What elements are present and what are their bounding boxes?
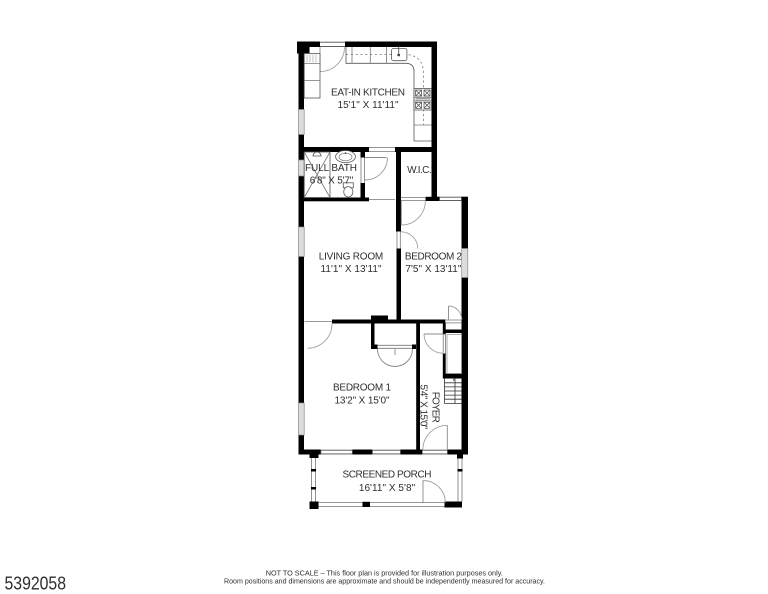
svg-text:W.I.C.: W.I.C. xyxy=(407,165,432,176)
svg-text:Room positions and dimensions: Room positions and dimensions are approx… xyxy=(224,579,545,586)
svg-text:FULL BATH: FULL BATH xyxy=(305,163,357,174)
svg-text:13'2" X 15'0": 13'2" X 15'0" xyxy=(335,396,390,407)
svg-text:5'4" X 15'0": 5'4" X 15'0" xyxy=(417,385,428,430)
svg-text:7'5" X 13'11": 7'5" X 13'11" xyxy=(405,264,461,275)
svg-text:SCREENED PORCH: SCREENED PORCH xyxy=(343,470,432,481)
svg-text:FOYER: FOYER xyxy=(430,392,441,423)
svg-text:EAT-IN KITCHEN: EAT-IN KITCHEN xyxy=(331,88,405,99)
svg-text:6'8" X 5'7": 6'8" X 5'7" xyxy=(310,176,354,187)
svg-text:NOT TO SCALE – This floor plan: NOT TO SCALE – This floor plan is provid… xyxy=(266,570,503,577)
svg-text:LIVING ROOM: LIVING ROOM xyxy=(319,252,384,263)
svg-text:BEDROOM 2: BEDROOM 2 xyxy=(405,252,462,263)
svg-text:16'11" X 5'8": 16'11" X 5'8" xyxy=(359,483,416,494)
svg-text:15'1" X 11'11": 15'1" X 11'11" xyxy=(338,100,399,111)
svg-text:BEDROOM 1: BEDROOM 1 xyxy=(333,383,391,394)
svg-text:11'1" X 13'11": 11'1" X 13'11" xyxy=(321,264,382,275)
svg-text:5392058: 5392058 xyxy=(5,573,67,593)
